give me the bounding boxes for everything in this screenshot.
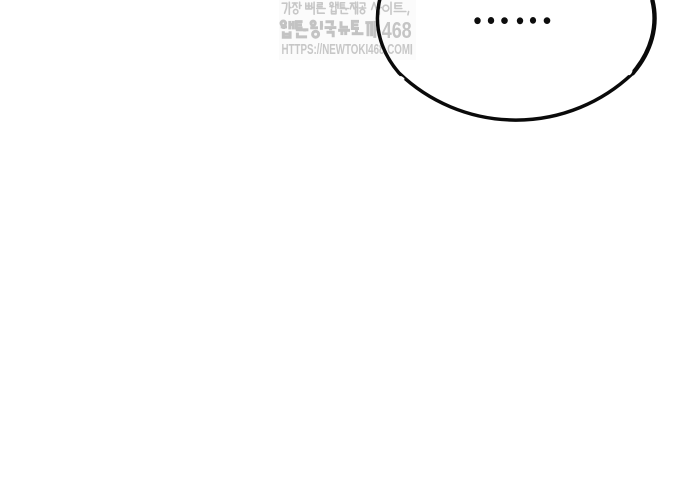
svg-text:468: 468 — [382, 17, 412, 43]
svg-text:HTTPS://NEWTOKI468.COM: HTTPS://NEWTOKI468.COM — [282, 42, 411, 58]
